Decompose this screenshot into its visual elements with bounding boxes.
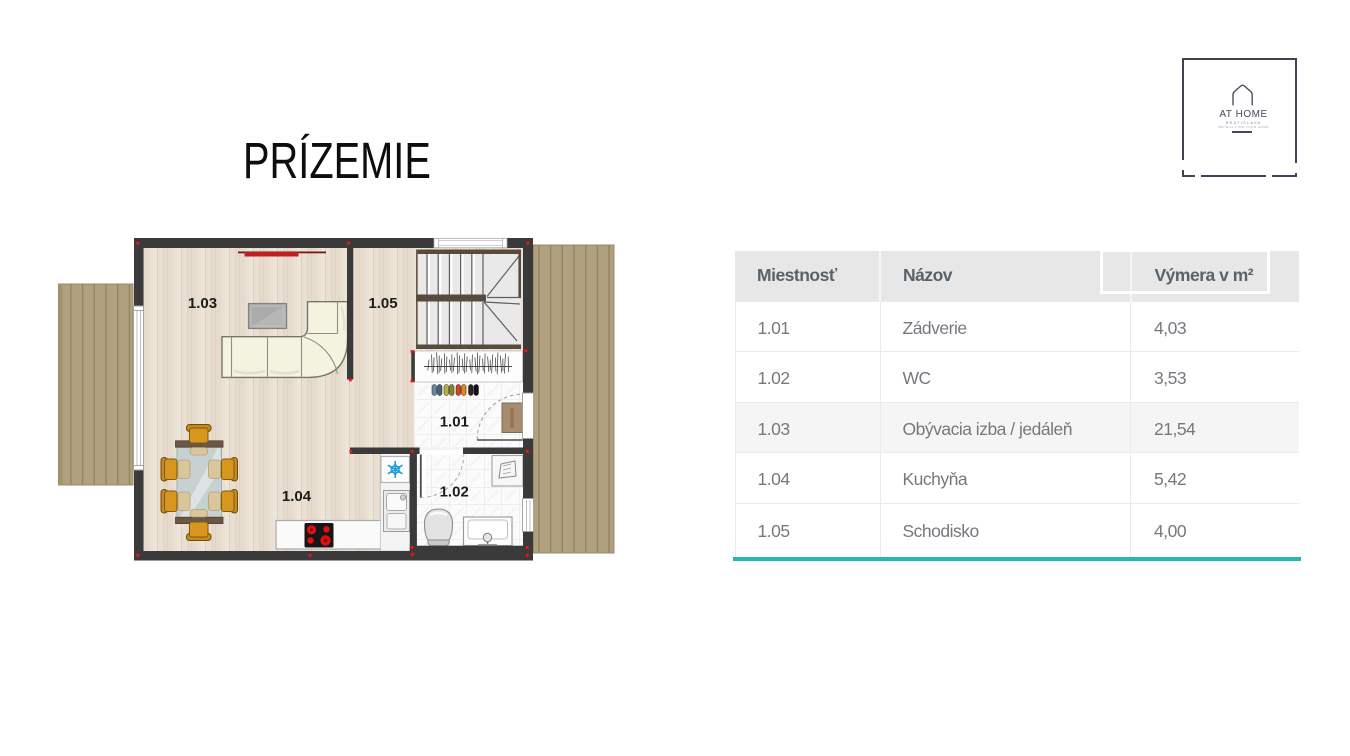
svg-text:1.02: 1.02 xyxy=(440,484,469,501)
svg-text:1.03: 1.03 xyxy=(188,295,217,312)
svg-text:1.01: 1.01 xyxy=(440,413,469,430)
svg-text:1.04: 1.04 xyxy=(282,488,312,505)
svg-text:1.05: 1.05 xyxy=(368,295,397,312)
